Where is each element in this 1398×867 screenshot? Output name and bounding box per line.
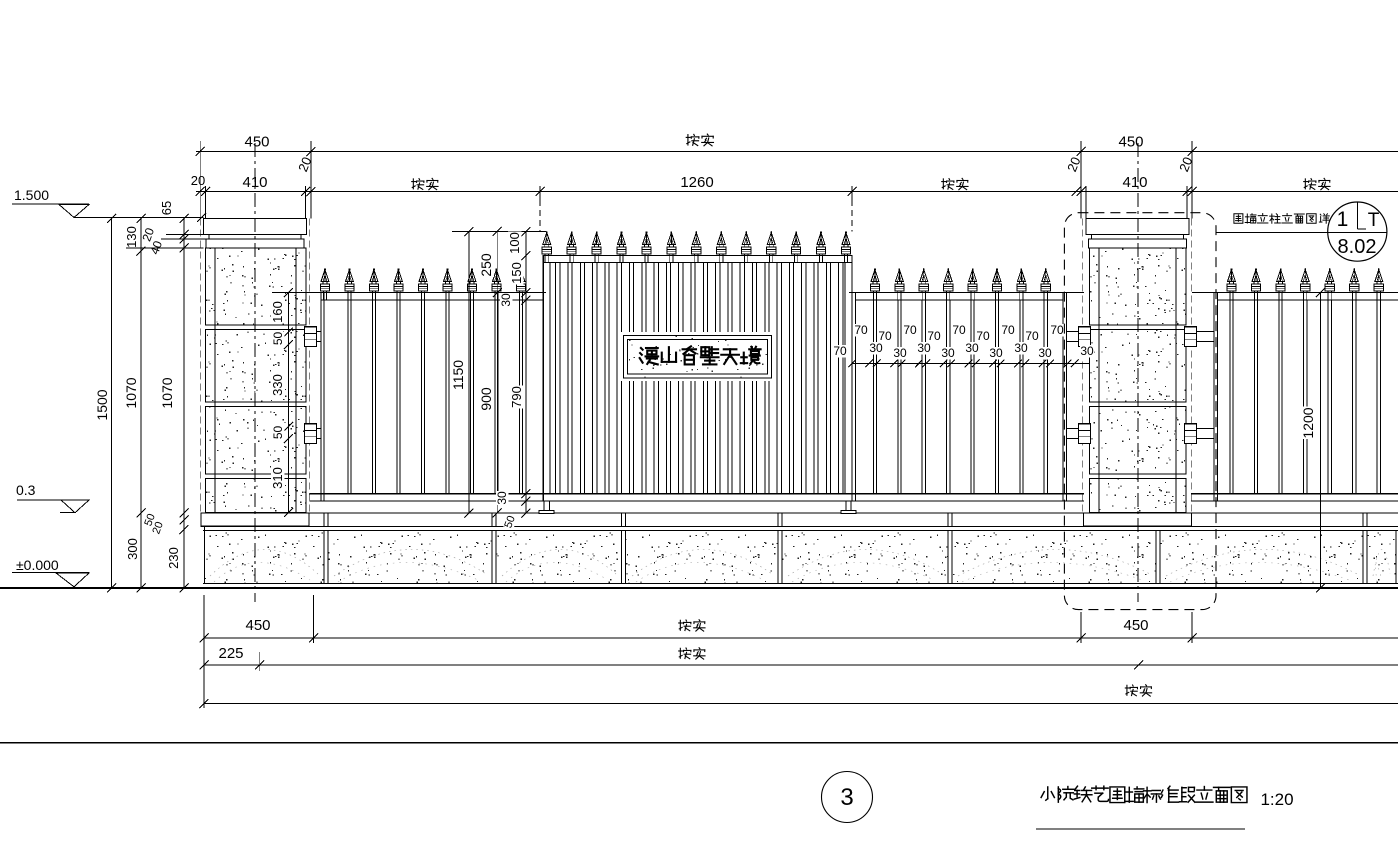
svg-text:T: T: [1368, 210, 1380, 231]
svg-text:300: 300: [125, 538, 140, 560]
svg-text:250: 250: [478, 253, 494, 277]
svg-text:30: 30: [495, 491, 509, 505]
svg-text:100: 100: [507, 232, 522, 254]
svg-text:70: 70: [833, 344, 847, 358]
svg-text:450: 450: [244, 134, 269, 151]
svg-text:3: 3: [840, 784, 853, 811]
svg-text:900: 900: [478, 387, 494, 411]
svg-text:20: 20: [191, 173, 205, 188]
svg-text:30: 30: [1014, 341, 1028, 355]
svg-text:1260: 1260: [680, 174, 713, 191]
svg-text:1500: 1500: [94, 389, 110, 420]
svg-text:1.500: 1.500: [14, 187, 49, 203]
svg-text:150: 150: [509, 262, 524, 284]
svg-text:30: 30: [941, 346, 955, 360]
svg-text:1:20: 1:20: [1260, 790, 1293, 809]
svg-text:30: 30: [965, 341, 979, 355]
svg-text:65: 65: [159, 201, 174, 215]
svg-text:30: 30: [917, 341, 931, 355]
svg-text:1070: 1070: [123, 377, 139, 408]
svg-text:50: 50: [271, 332, 285, 346]
svg-text:70: 70: [1001, 323, 1015, 337]
svg-text:70: 70: [952, 323, 966, 337]
svg-text:70: 70: [903, 323, 917, 337]
svg-text:330: 330: [270, 374, 285, 396]
svg-text:450: 450: [1123, 617, 1148, 634]
svg-text:30: 30: [1038, 346, 1052, 360]
svg-text:130: 130: [124, 226, 139, 248]
svg-text:8.02: 8.02: [1338, 236, 1377, 258]
svg-text:230: 230: [166, 547, 181, 569]
svg-text:70: 70: [854, 323, 868, 337]
svg-text:30: 30: [893, 346, 907, 360]
svg-text:410: 410: [1122, 174, 1147, 191]
svg-text:1150: 1150: [450, 360, 466, 390]
svg-text:1070: 1070: [159, 377, 175, 408]
svg-text:450: 450: [245, 617, 270, 634]
svg-text:±0.000: ±0.000: [16, 557, 59, 573]
svg-text:30: 30: [499, 293, 513, 307]
svg-text:410: 410: [242, 174, 267, 191]
svg-text:225: 225: [218, 645, 243, 662]
svg-text:790: 790: [509, 386, 524, 408]
svg-text:310: 310: [270, 467, 285, 489]
svg-text:30: 30: [1080, 344, 1094, 358]
svg-text:30: 30: [869, 341, 883, 355]
svg-text:1: 1: [1337, 208, 1349, 231]
svg-text:30: 30: [989, 346, 1003, 360]
svg-text:70: 70: [1050, 323, 1064, 337]
svg-text:0.3: 0.3: [16, 482, 36, 498]
svg-text:1200: 1200: [1300, 407, 1316, 438]
svg-text:160: 160: [270, 301, 285, 323]
svg-text:50: 50: [271, 426, 285, 440]
svg-text:450: 450: [1118, 134, 1143, 151]
